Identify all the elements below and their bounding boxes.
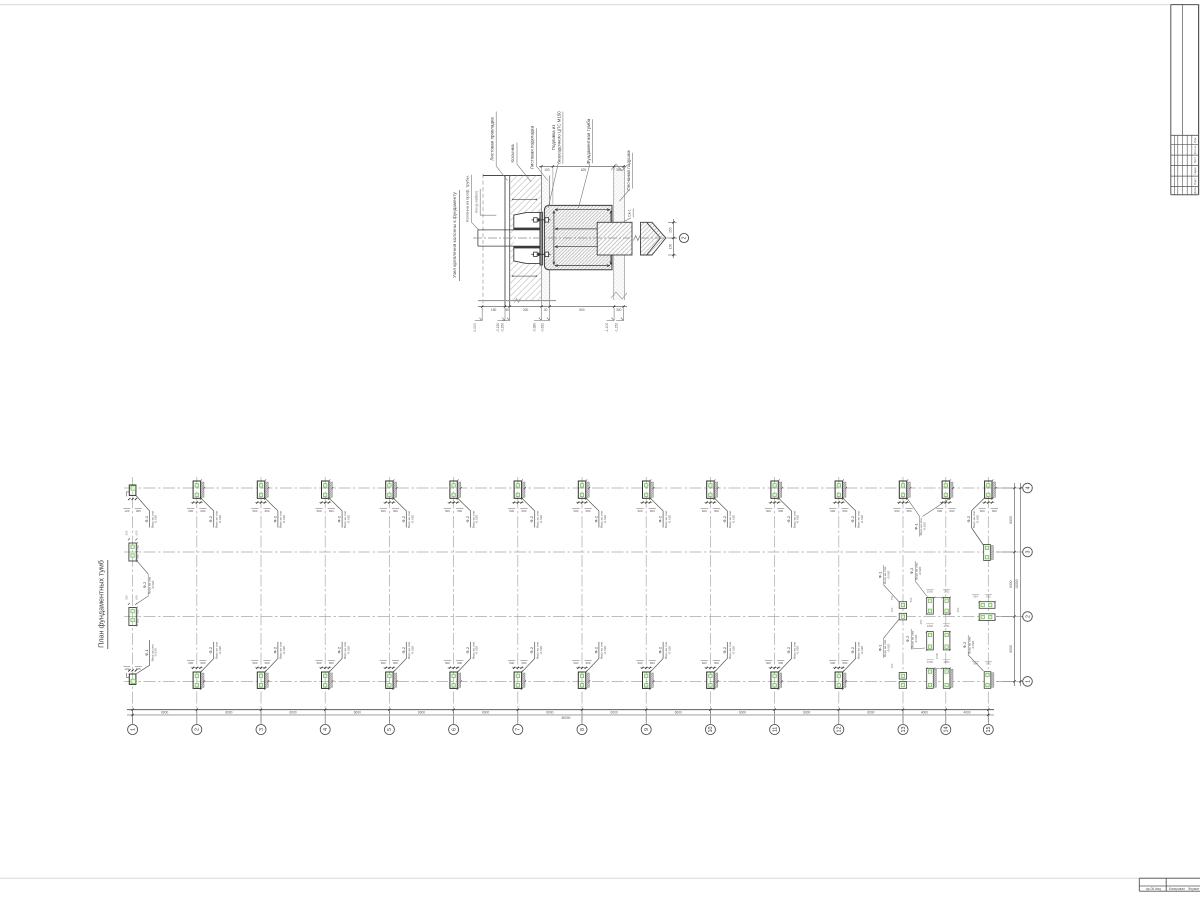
svg-text:300: 300 [956,607,960,612]
svg-text:-0.620: -0.620 [218,515,222,524]
svg-text:064: 064 [973,662,978,666]
svg-text:750: 750 [136,554,140,559]
svg-text:13: 13 [901,727,907,733]
svg-text:600: 600 [252,661,257,665]
svg-text:-0.150: -0.150 [496,323,500,333]
svg-text:Ф-2: Ф-2 [465,646,470,653]
svg-text:-0.620: -0.620 [732,515,736,524]
svg-text:-0.620: -0.620 [346,515,350,524]
svg-text:065: 065 [136,667,141,671]
svg-text:600: 600 [650,509,655,513]
svg-text:2: 2 [682,236,688,239]
svg-text:600: 600 [252,509,257,513]
svg-text:600: 600 [714,661,719,665]
svg-text:600: 600 [317,661,322,665]
svg-text:750: 750 [136,618,140,623]
svg-text:-0.620: -0.620 [667,515,671,524]
svg-text:Ф-2: Ф-2 [272,515,277,522]
svg-text:Ф-2: Ф-2 [465,515,470,522]
svg-text:1: 1 [130,728,136,731]
svg-text:600: 600 [714,509,719,513]
svg-text:600: 600 [573,509,578,513]
svg-text:4000: 4000 [921,711,928,715]
svg-text:062: 062 [986,662,991,666]
svg-text:300: 300 [124,530,128,535]
svg-text:Ф-2: Ф-2 [529,515,534,522]
svg-text:Песчаная подушка: Песчаная подушка [626,150,631,191]
svg-text:Ф-2: Ф-2 [786,515,791,522]
svg-text:Ф-2: Ф-2 [962,641,967,648]
svg-text:100: 100 [544,168,550,172]
svg-text:-0.620: -0.620 [887,570,891,579]
svg-text:-0.620: -0.620 [603,515,607,524]
svg-text:Дата: Дата [1193,187,1197,194]
svg-text:1: 1 [1025,680,1031,683]
svg-text:750: 750 [136,545,140,550]
svg-text:600: 600 [188,509,193,513]
svg-text:600: 600 [830,661,835,665]
svg-text:Ф-2: Ф-2 [850,646,855,653]
svg-text:-0.620: -0.620 [218,646,222,655]
svg-text:ар-06.dwg: ар-06.dwg [1146,887,1161,891]
svg-text:120: 120 [124,509,129,513]
svg-text:безусадочного ЦПС М150: безусадочного ЦПС М150 [556,111,561,164]
svg-text:6000: 6000 [418,711,425,715]
svg-text:600: 600 [509,661,514,665]
svg-text:600: 600 [509,509,514,513]
svg-text:1051: 1051 [943,590,950,594]
svg-text:600: 600 [265,661,270,665]
svg-text:600: 600 [445,509,450,513]
svg-text:750: 750 [136,609,140,614]
svg-text:-0.620: -0.620 [796,515,800,524]
svg-text:8: 8 [580,728,586,731]
svg-text:-0.620: -0.620 [475,515,479,524]
svg-text:Ск-1: Ск-1 [628,209,632,217]
svg-text:6000: 6000 [675,711,682,715]
svg-text:-0.620: -0.620 [541,323,545,333]
svg-text:300: 300 [616,308,622,312]
svg-text:Ф-1: Ф-1 [144,649,149,656]
svg-text:600: 600 [949,509,954,513]
svg-text:6000: 6000 [611,711,618,715]
svg-text:Ф-2: Ф-2 [593,646,598,653]
svg-text:Колонна из проф. трубы.: Колонна из проф. трубы. [465,175,470,221]
svg-text:50: 50 [506,308,510,312]
svg-text:600: 600 [980,509,985,513]
svg-text:600: 600 [381,661,386,665]
svg-text:600: 600 [393,661,398,665]
svg-text:14: 14 [944,727,950,733]
svg-text:1060: 1060 [927,660,934,664]
svg-text:-0.620: -0.620 [732,646,736,655]
svg-text:-0.620: -0.620 [154,515,158,524]
svg-text:600: 600 [778,661,783,665]
svg-text:-0.620: -0.620 [282,515,286,524]
svg-text:600: 600 [134,595,138,600]
svg-text:625: 625 [581,168,587,172]
svg-text:Ф-2: Ф-2 [272,646,277,653]
svg-text:120: 120 [124,667,129,671]
svg-text:Ф-2: Ф-2 [208,646,213,653]
svg-text:Изм.: Изм. [1193,137,1197,143]
svg-text:3: 3 [259,728,265,731]
svg-text:600: 600 [200,509,205,513]
svg-text:2: 2 [1025,615,1031,618]
svg-text:150: 150 [669,244,673,250]
svg-text:-0.620: -0.620 [603,646,607,655]
svg-text:0.000: 0.000 [473,323,477,332]
svg-text:Ф-2: Ф-2 [966,515,971,522]
svg-text:11: 11 [772,727,778,733]
svg-text:Ф-2: Ф-2 [142,581,147,588]
svg-text:600: 600 [992,509,997,513]
svg-text:600: 600 [907,509,912,513]
svg-text:300: 300 [523,308,529,312]
svg-text:Ф-1: Ф-1 [144,515,149,522]
svg-text:5: 5 [387,728,393,731]
svg-text:Ф-2: Ф-2 [658,515,663,522]
svg-text:-0.620: -0.620 [860,515,864,524]
svg-text:-1.150: -1.150 [614,323,618,333]
svg-text:600: 600 [650,661,655,665]
svg-text:600: 600 [445,661,450,665]
svg-text:6000: 6000 [354,711,361,715]
svg-text:500: 500 [909,597,913,602]
svg-text:Ф-2: Ф-2 [401,646,406,653]
svg-text:Ф-2: Ф-2 [786,646,791,653]
svg-text:600: 600 [842,661,847,665]
svg-text:№док: №док [1193,166,1197,174]
svg-text:4000: 4000 [963,711,970,715]
svg-text:600: 600 [830,509,835,513]
svg-text:750: 750 [890,595,894,600]
svg-text:Ф-2: Ф-2 [905,635,910,642]
svg-text:80000: 80000 [562,716,571,720]
svg-text:150: 150 [890,663,894,668]
svg-text:-0.620: -0.620 [887,643,891,652]
svg-text:-0.620: -0.620 [411,515,415,524]
svg-text:-0.620: -0.620 [796,646,800,655]
svg-text:15: 15 [986,727,992,733]
svg-text:6000: 6000 [225,711,232,715]
svg-text:3: 3 [1025,551,1031,554]
svg-text:План фундаментных тумб: План фундаментных тумб [97,560,106,648]
svg-text:Листовая подкладка: Листовая подкладка [530,125,535,169]
svg-text:600: 600 [638,661,643,665]
svg-text:600: 600 [778,509,783,513]
svg-text:600: 600 [265,509,270,513]
svg-text:600: 600 [393,509,398,513]
svg-text:6000: 6000 [1009,645,1013,653]
svg-text:-0.620: -0.620 [971,640,975,649]
svg-text:600: 600 [457,661,462,665]
svg-text:30: 30 [544,308,548,312]
svg-text:300: 300 [616,168,622,172]
svg-text:1051: 1051 [943,660,950,664]
svg-text:18000: 18000 [1015,579,1019,588]
svg-text:2: 2 [195,728,201,731]
svg-text:150: 150 [890,607,894,612]
svg-text:-0.620: -0.620 [151,580,155,589]
svg-text:Ф-2: Ф-2 [722,646,727,653]
svg-text:-0.620: -0.620 [923,522,927,531]
svg-text:-0.620: -0.620 [667,646,671,655]
svg-text:9: 9 [644,728,650,731]
svg-text:600: 600 [188,661,193,665]
svg-text:Ф-2: Ф-2 [722,515,727,522]
svg-text:6: 6 [451,728,457,731]
svg-text:600: 600 [521,509,526,513]
svg-text:-0.620: -0.620 [539,515,543,524]
svg-text:Низ (у. найвол): Низ (у. найвол) [474,191,478,213]
svg-text:Ф-2: Ф-2 [337,515,342,522]
svg-text:6000: 6000 [482,711,489,715]
svg-text:-0.620: -0.620 [914,634,918,643]
svg-text:12: 12 [837,727,843,733]
svg-text:-0.620: -0.620 [475,646,479,655]
svg-text:-0.620: -0.620 [860,646,864,655]
svg-text:1051: 1051 [943,624,950,628]
svg-text:250: 250 [919,619,923,624]
svg-text:600: 600 [200,661,205,665]
svg-text:7: 7 [516,728,522,731]
svg-text:300: 300 [124,595,128,600]
svg-text:1000: 1000 [935,652,939,659]
svg-text:Косынка: Косынка [510,144,515,162]
svg-text:Ф-2: Ф-2 [658,646,663,653]
svg-text:Ф-1: Ф-1 [878,644,883,651]
svg-text:600: 600 [329,509,334,513]
svg-text:Фундаментная тумба: Фундаментная тумба [586,118,591,164]
svg-text:600: 600 [134,530,138,535]
svg-text:6000: 6000 [867,711,874,715]
svg-text:600: 600 [586,509,591,513]
svg-text:6000: 6000 [161,711,168,715]
svg-text:Ф-1: Ф-1 [878,571,883,578]
svg-text:Ф-2: Ф-2 [208,515,213,522]
svg-text:Подп.: Подп. [1193,177,1197,185]
svg-text:-0.250: -0.250 [501,323,505,333]
svg-text:-0.380: -0.380 [532,323,536,333]
svg-text:065: 065 [136,509,141,513]
svg-text:-0.620: -0.620 [918,566,922,575]
svg-text:600: 600 [702,661,707,665]
svg-text:062: 062 [986,595,991,599]
svg-text:600: 600 [457,509,462,513]
svg-text:600: 600 [638,509,643,513]
svg-text:6000: 6000 [1009,580,1013,588]
svg-text:Лист: Лист [1193,157,1197,164]
svg-text:Кол.уч: Кол.уч [1193,145,1197,154]
svg-text:Ф-2: Ф-2 [337,646,342,653]
svg-text:4: 4 [323,728,329,731]
svg-text:064: 064 [973,595,978,599]
svg-text:1060: 1060 [927,590,934,594]
svg-text:150: 150 [669,227,673,233]
svg-text:-1.100: -1.100 [605,323,609,333]
svg-text:180: 180 [491,308,497,312]
svg-text:600: 600 [894,509,899,513]
svg-text:-0.620: -0.620 [411,646,415,655]
svg-text:600: 600 [766,509,771,513]
svg-text:600: 600 [937,509,942,513]
svg-text:600: 600 [842,509,847,513]
svg-text:600: 600 [521,661,526,665]
svg-text:Узел крепления колонны к фунда: Узел крепления колонны к фундаменту [452,191,457,277]
svg-text:500: 500 [579,308,585,312]
svg-text:1060: 1060 [927,624,934,628]
svg-text:6000: 6000 [803,711,810,715]
svg-text:Ф-2: Ф-2 [850,515,855,522]
svg-text:Копировал: Копировал [1169,887,1185,891]
svg-text:Ф-2: Ф-2 [401,515,406,522]
svg-text:Листовая прокладка: Листовая прокладка [489,117,494,161]
svg-text:600: 600 [766,661,771,665]
svg-text:-0.620: -0.620 [154,648,158,657]
svg-text:4: 4 [1025,487,1031,490]
svg-text:600: 600 [702,509,707,513]
svg-text:6000: 6000 [546,711,553,715]
svg-text:Формат А1: Формат А1 [1188,887,1200,891]
svg-text:600: 600 [317,509,322,513]
svg-text:600: 600 [586,661,591,665]
svg-text:Ф-1: Ф-1 [914,522,919,529]
svg-text:-0.620: -0.620 [282,646,286,655]
svg-text:6000: 6000 [290,711,297,715]
svg-text:6000: 6000 [739,711,746,715]
svg-text:-0.620: -0.620 [976,515,980,524]
svg-text:-0.620: -0.620 [346,646,350,655]
svg-text:10: 10 [708,727,714,733]
svg-text:Ф-2: Ф-2 [593,515,598,522]
svg-text:600: 600 [573,661,578,665]
svg-text:Ф-2: Ф-2 [909,567,914,574]
svg-text:6000: 6000 [1009,516,1013,524]
svg-text:600: 600 [381,509,386,513]
svg-text:Ф-2: Ф-2 [529,646,534,653]
svg-text:600: 600 [329,661,334,665]
svg-text:-0.620: -0.620 [539,646,543,655]
